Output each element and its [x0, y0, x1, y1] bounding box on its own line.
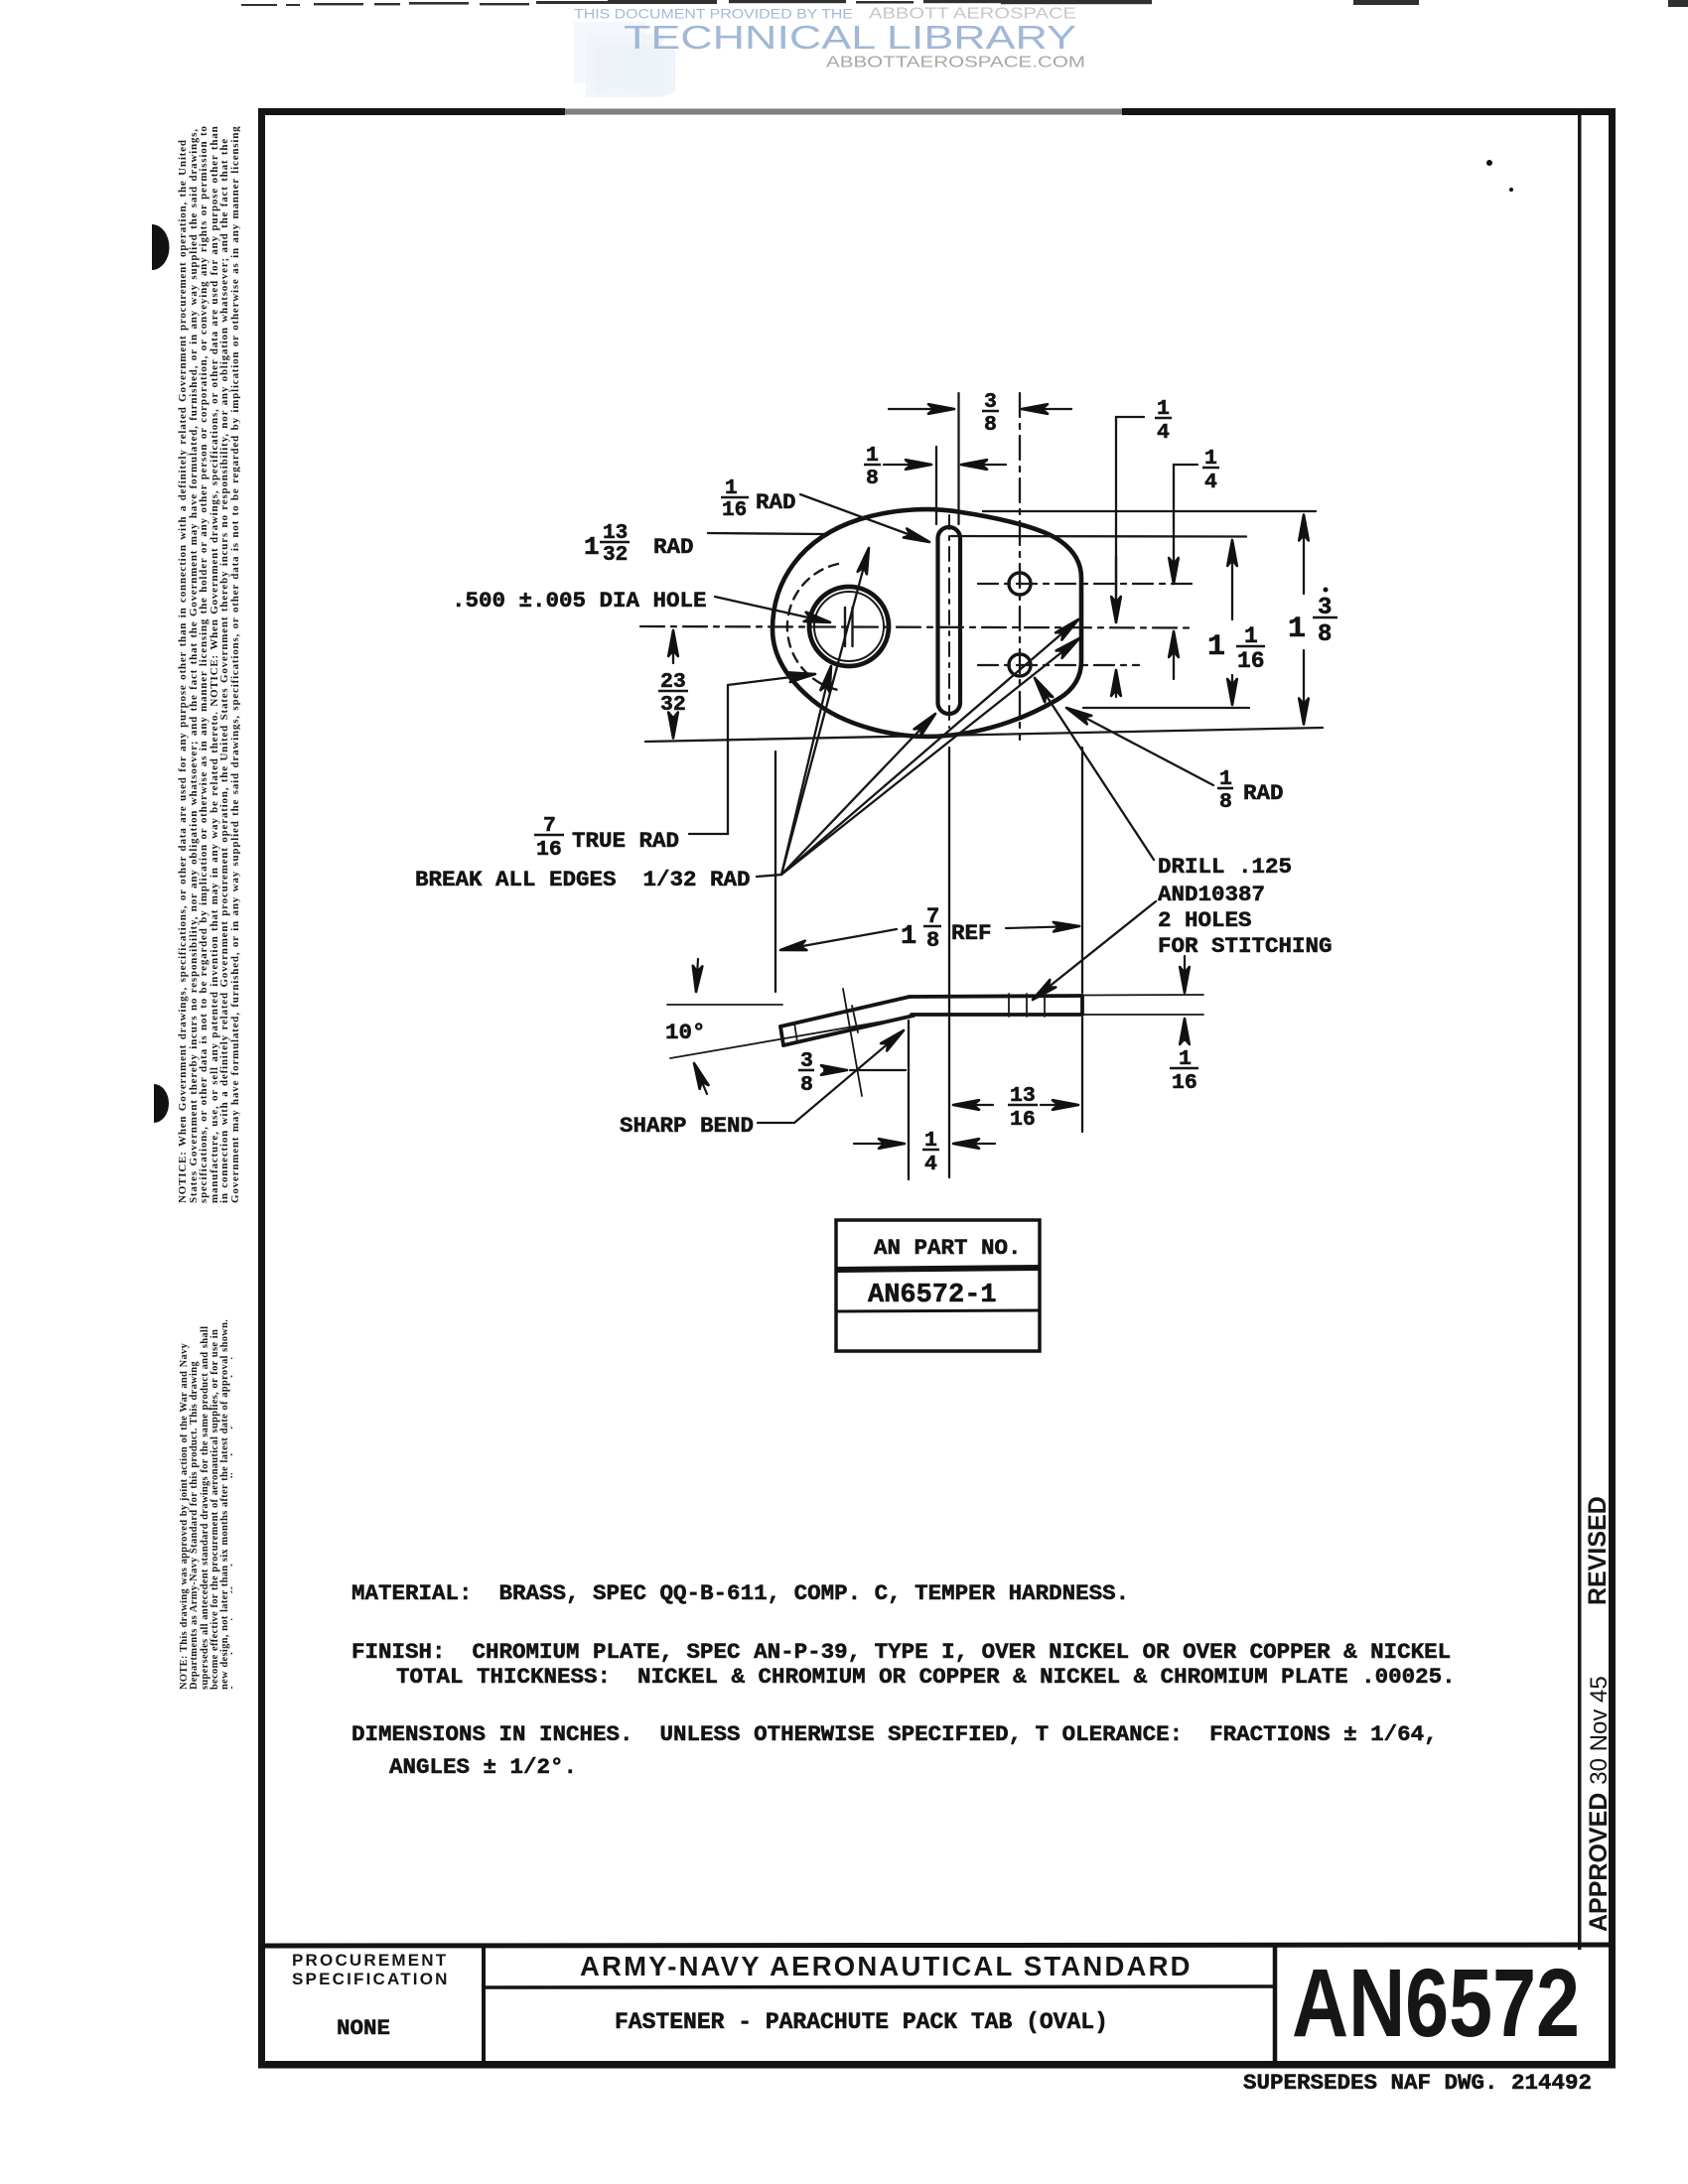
svg-text:FOR STITCHING: FOR STITCHING — [1158, 933, 1333, 959]
svg-text:REF: REF — [951, 920, 992, 946]
svg-text:1: 1 — [901, 922, 916, 952]
svg-text:16: 16 — [536, 838, 562, 862]
svg-text:BREAK ALL EDGES 1/32 RAD: BREAK ALL EDGES 1/32 RAD — [415, 867, 751, 892]
svg-text:AND10387: AND10387 — [1158, 882, 1265, 907]
svg-text:RAD: RAD — [756, 489, 796, 515]
svg-text:16: 16 — [722, 499, 747, 522]
svg-text:SPECIFICATION: SPECIFICATION — [292, 1970, 450, 1988]
svg-text:MATERIAL: BRASS, SPEC QQ-B-61: MATERIAL: BRASS, SPEC QQ-B-611, COMP. C,… — [352, 1580, 1129, 1606]
svg-text:4: 4 — [924, 1153, 937, 1176]
svg-text:APPROVED30 Nov 45: APPROVED30 Nov 45 — [1585, 1676, 1613, 1932]
svg-text:NONE: NONE — [337, 2015, 390, 2041]
svg-text:4: 4 — [1157, 421, 1170, 445]
svg-text:TOTAL THICKNESS: NICKEL & CHR: TOTAL THICKNESS: NICKEL & CHROMIUM OR CO… — [396, 1664, 1456, 1690]
svg-text:TECHNICAL LIBRARY: TECHNICAL LIBRARY — [624, 19, 1076, 56]
svg-text:RAD: RAD — [1243, 780, 1284, 806]
svg-text:8: 8 — [1318, 621, 1332, 648]
svg-text:AN6572: AN6572 — [1292, 1949, 1580, 2057]
svg-text:RAD: RAD — [653, 534, 694, 560]
svg-text:10°: 10° — [665, 1020, 706, 1045]
svg-text:2 HOLES: 2 HOLES — [1158, 907, 1252, 933]
svg-text:PROCUREMENT: PROCUREMENT — [292, 1951, 448, 1970]
svg-text:4: 4 — [1204, 471, 1217, 494]
svg-text:16: 16 — [1237, 648, 1265, 674]
svg-text:16: 16 — [1172, 1071, 1197, 1095]
svg-text:.500 ±.005 DIA HOLE: .500 ±.005 DIA HOLE — [452, 588, 707, 614]
svg-text:16: 16 — [1010, 1108, 1036, 1132]
svg-text:1: 1 — [584, 532, 600, 562]
svg-text:SHARP BEND: SHARP BEND — [620, 1113, 754, 1139]
svg-text:ANGLES ± 1/2°.: ANGLES ± 1/2°. — [389, 1754, 577, 1780]
svg-text:8: 8 — [926, 928, 939, 953]
svg-text:FASTENER - PARACHUTE PACK TAB: FASTENER - PARACHUTE PACK TAB (OVAL) — [615, 2009, 1108, 2035]
svg-text:ARMY-NAVY AERONAUTICAL STANDAR: ARMY-NAVY AERONAUTICAL STANDARD — [580, 1951, 1193, 1981]
svg-text:8: 8 — [984, 413, 997, 437]
svg-text:TRUE RAD: TRUE RAD — [572, 828, 679, 854]
svg-text:8: 8 — [1219, 790, 1232, 814]
svg-text:1: 1 — [1207, 630, 1225, 664]
svg-text:32: 32 — [660, 693, 686, 717]
svg-text:AN PART NO.: AN PART NO. — [874, 1235, 1022, 1261]
svg-text:ABBOTTAEROSPACE.COM: ABBOTTAEROSPACE.COM — [826, 55, 1085, 71]
svg-text:DIMENSIONS IN INCHES. UNLESS: DIMENSIONS IN INCHES. UNLESS OTHERWISE S… — [352, 1721, 1438, 1747]
svg-text:8: 8 — [866, 467, 879, 490]
svg-text:8: 8 — [800, 1073, 813, 1097]
svg-text:DRILL .125: DRILL .125 — [1158, 854, 1292, 880]
svg-text:1: 1 — [1288, 613, 1306, 646]
svg-text:REVISED: REVISED — [1584, 1496, 1612, 1605]
svg-text:FINISH: CHROMIUM PLATE, SPEC: FINISH: CHROMIUM PLATE, SPEC AN-P-39, TY… — [352, 1639, 1451, 1665]
svg-text:32: 32 — [603, 544, 628, 567]
svg-text:AN6572-1: AN6572-1 — [868, 1281, 997, 1310]
svg-text:SUPERSEDES NAF DWG. 214492: SUPERSEDES NAF DWG. 214492 — [1243, 2070, 1592, 2096]
